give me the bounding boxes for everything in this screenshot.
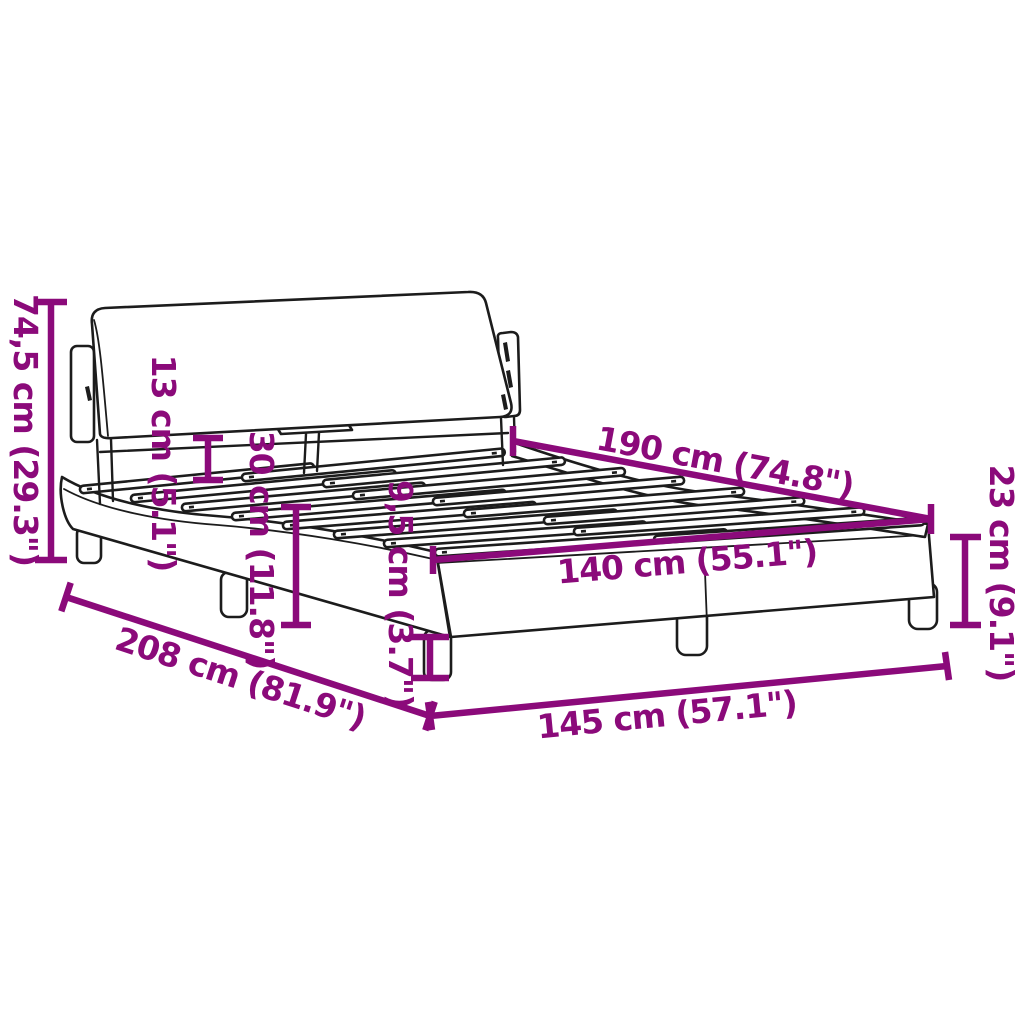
dimension-headboard-panel-height-label: 13 cm (5.1") [144,355,183,572]
dimension-foot-end-height: 23 cm (9.1") [950,465,1021,682]
diagram-canvas: 74,5 cm (29.3") 13 cm (5.1") 30 cm (11.8… [0,0,1024,1024]
bed-frame-dimension-diagram: 74,5 cm (29.3") 13 cm (5.1") 30 cm (11.8… [0,0,1024,1024]
dimension-frame-rail-height-label: 9,5 cm (3.7") [381,480,420,708]
dimension-foot-end-height-label: 23 cm (9.1") [982,465,1021,682]
dimension-total-height: 74,5 cm (29.3") [6,294,67,566]
dimension-total-height-label: 74,5 cm (29.3") [6,294,45,566]
dimension-side-height-label: 30 cm (11.8") [242,431,281,670]
dimension-total-width: 145 cm (57.1") [428,652,949,746]
dimension-total-length-label: 208 cm (81.9") [111,619,371,737]
